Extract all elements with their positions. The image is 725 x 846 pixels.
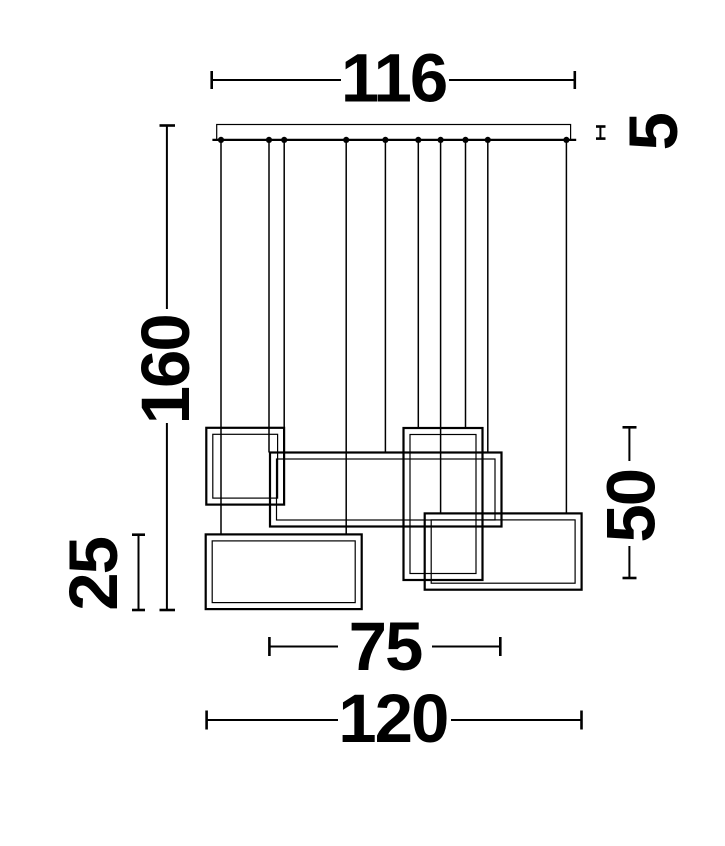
svg-text:50: 50 bbox=[593, 470, 670, 543]
svg-text:75: 75 bbox=[349, 608, 422, 685]
svg-text:25: 25 bbox=[55, 537, 132, 610]
svg-text:120: 120 bbox=[338, 680, 447, 757]
svg-text:160: 160 bbox=[127, 315, 204, 424]
svg-text:116: 116 bbox=[341, 40, 446, 117]
svg-text:5: 5 bbox=[615, 113, 692, 150]
